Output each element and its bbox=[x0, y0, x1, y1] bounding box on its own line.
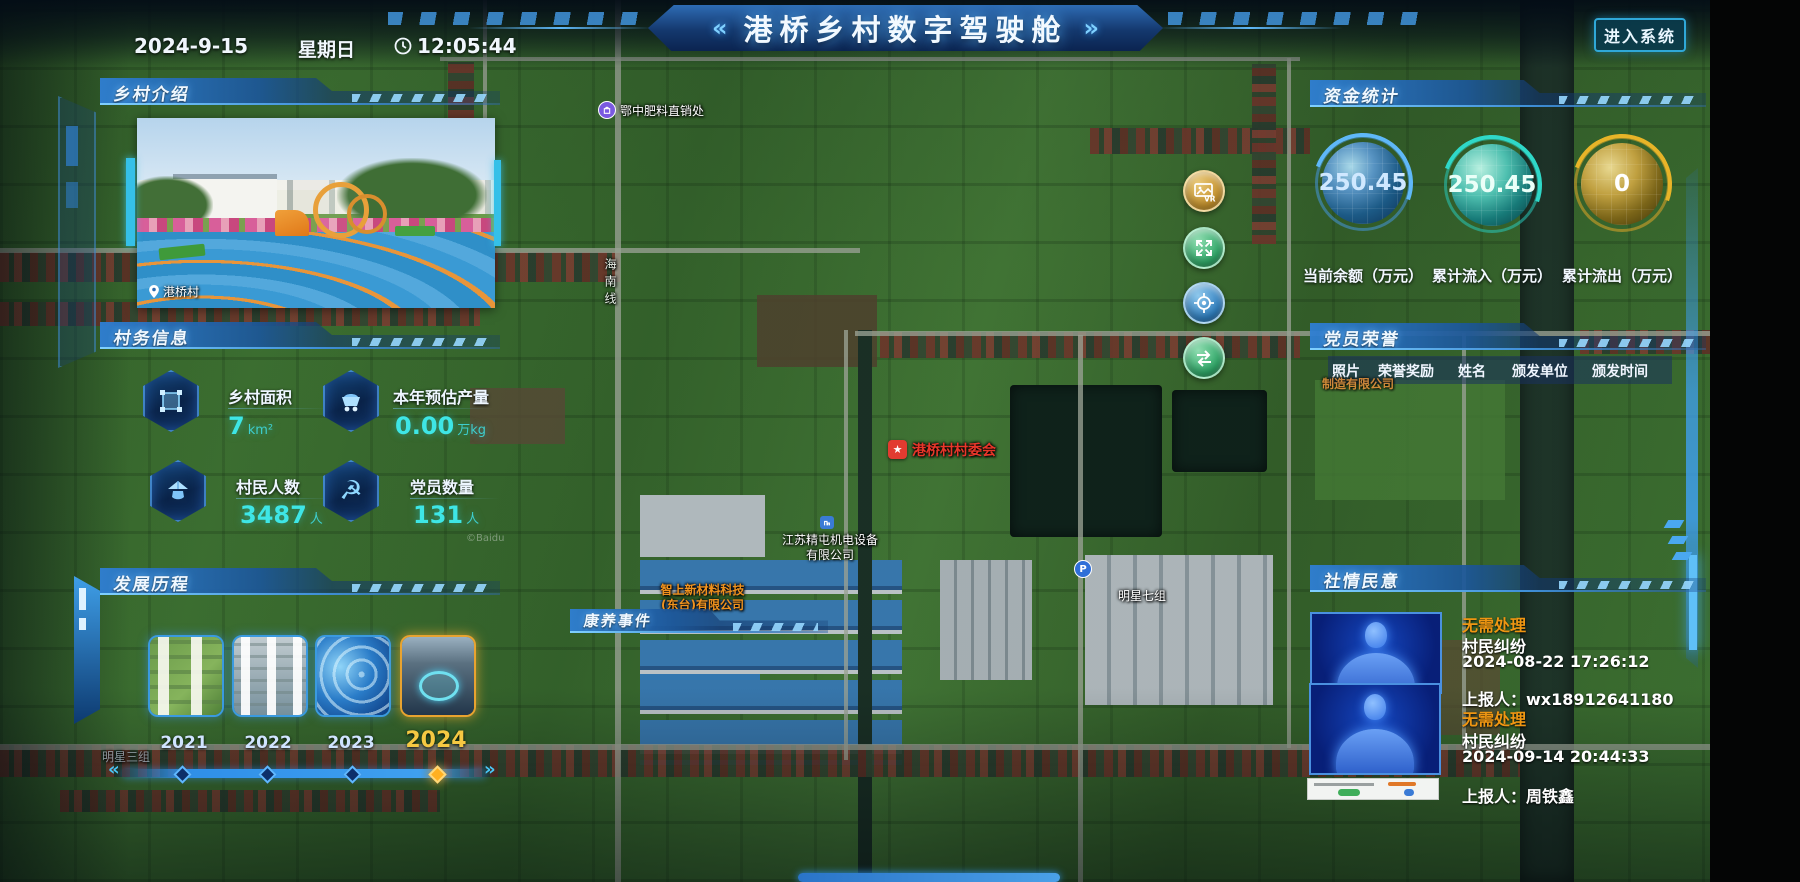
stat-label-area: 乡村面积 bbox=[228, 384, 292, 408]
left-chevron-icon: « bbox=[712, 14, 728, 42]
header-stripes bbox=[1559, 581, 1696, 589]
gauge-inflow: 250.45 bbox=[1444, 137, 1540, 233]
photo-bench bbox=[395, 226, 435, 236]
map-road bbox=[440, 57, 1300, 61]
village-intro-title: 乡村介绍 bbox=[112, 80, 192, 105]
stat-number: 7 bbox=[228, 412, 245, 440]
map-houses bbox=[60, 790, 440, 812]
photo-location-text: 港桥村 bbox=[163, 283, 199, 300]
photo-caption: 港桥村 bbox=[149, 283, 199, 300]
banner-wing-left bbox=[468, 27, 653, 29]
gauge-inflow-value: 250.45 bbox=[1444, 137, 1540, 233]
stat-label-yield: 本年预估产量 bbox=[393, 384, 489, 408]
village-info-title: 村务信息 bbox=[112, 324, 192, 349]
time-text: 12:05:44 bbox=[417, 34, 517, 58]
year-label-2024[interactable]: 2024 bbox=[398, 728, 474, 753]
thumb-green-pill bbox=[1338, 789, 1360, 796]
committee-star-pin-icon[interactable]: ★ bbox=[888, 440, 907, 459]
year-label-2022[interactable]: 2022 bbox=[230, 733, 306, 753]
vr-panorama-button[interactable]: VR bbox=[1183, 170, 1225, 212]
shop-pin-icon[interactable] bbox=[598, 101, 616, 119]
header-stripes bbox=[733, 623, 818, 631]
banner-wing-right bbox=[1158, 27, 1343, 29]
sentiment-title: 社情民意 bbox=[1322, 567, 1402, 592]
sentiment-list[interactable]: 无需处理 村民纠纷 2024-08-22 17:26:12 上报人：wx1891… bbox=[1305, 600, 1705, 882]
enter-system-button[interactable]: 进入系统 bbox=[1594, 18, 1686, 52]
header-decor-slashes-left bbox=[388, 12, 638, 25]
thumbnail-2021 bbox=[150, 637, 222, 715]
year-card-2023[interactable] bbox=[315, 635, 391, 717]
crosshair-icon bbox=[1192, 291, 1216, 315]
stat-divider bbox=[410, 498, 500, 499]
date-text: 2024-9-15 bbox=[134, 34, 248, 58]
header-stripes bbox=[1559, 96, 1696, 104]
vr-image-icon: VR bbox=[1192, 179, 1216, 203]
company-building-pin-icon[interactable] bbox=[820, 516, 834, 529]
map-white-building bbox=[640, 495, 765, 557]
map-warehouse bbox=[940, 560, 1032, 680]
stat-value-villagers: 3487人 bbox=[240, 501, 323, 529]
weekday-text: 星期日 bbox=[298, 35, 355, 62]
photo-accent-left bbox=[126, 158, 135, 246]
left-frame-bright bbox=[74, 576, 100, 724]
title-banner: « 港桥乡村数字驾驶舱 » bbox=[648, 5, 1163, 51]
company2-line1: 智上新材料科技 bbox=[650, 583, 755, 598]
stat-divider bbox=[228, 408, 328, 409]
map-road bbox=[1287, 58, 1291, 748]
map-label-road: 海南线 bbox=[602, 258, 617, 309]
left-frame-notch bbox=[66, 126, 78, 166]
map-label-company1: 江苏精屯机电设备 有限公司 bbox=[770, 533, 890, 563]
map-warehouse bbox=[1085, 555, 1273, 705]
map-road bbox=[855, 331, 1710, 336]
thumb-line bbox=[1314, 783, 1374, 786]
photo-accent-right bbox=[494, 160, 501, 246]
party-honors-title: 党员荣誉 bbox=[1322, 325, 1402, 350]
header-decor-slashes-right bbox=[1168, 12, 1418, 25]
header-stripes bbox=[352, 584, 490, 592]
village-photo[interactable]: 港桥村 bbox=[137, 118, 495, 308]
sentiment-item-1-time: 2024-08-22 17:26:12 bbox=[1462, 652, 1650, 671]
clock-icon bbox=[394, 37, 412, 59]
development-title: 发展历程 bbox=[112, 570, 192, 595]
sentiment-item-3-image-partial[interactable] bbox=[1307, 778, 1439, 800]
thumb-orange-line bbox=[1388, 782, 1416, 786]
parking-pin-icon[interactable]: P bbox=[1074, 560, 1092, 578]
thumbnail-2024-ring bbox=[419, 671, 459, 701]
sentiment-item-2-time: 2024-09-14 20:44:33 bbox=[1462, 747, 1650, 766]
bag-icon bbox=[603, 106, 611, 114]
thumb-blue-pill bbox=[1404, 789, 1414, 796]
gauge-outflow: 0 bbox=[1574, 136, 1670, 232]
stat-label-villagers: 村民人数 bbox=[236, 474, 300, 498]
layer-switch-button[interactable] bbox=[1183, 337, 1225, 379]
timeline-prev-icon[interactable]: « bbox=[108, 759, 120, 780]
gauge-outflow-label: 累计流出（万元） bbox=[1547, 265, 1697, 286]
gauge-balance-value: 250.45 bbox=[1315, 135, 1411, 231]
header-stripes bbox=[352, 94, 490, 102]
map-bottom-scrollbar[interactable] bbox=[798, 873, 1060, 882]
map-houses bbox=[1090, 128, 1310, 154]
stat-number: 0.00 bbox=[395, 412, 454, 440]
timeline-slider[interactable]: « » bbox=[112, 764, 496, 782]
photo-ring-sculpture-small bbox=[347, 194, 387, 234]
screen-black-edge bbox=[1710, 0, 1800, 882]
stat-divider bbox=[236, 498, 336, 499]
dashboard: 鄂中肥料直销处 海南线 ★ 港桥村村委会 江苏精屯机电设备 有限公司 智上新材料… bbox=[0, 0, 1800, 882]
col-name: 姓名 bbox=[1458, 361, 1486, 381]
stat-label-party: 党员数量 bbox=[410, 474, 474, 498]
left-frame-notch bbox=[66, 182, 78, 208]
stat-unit: 万kg bbox=[457, 423, 486, 438]
map-pond bbox=[1172, 390, 1267, 472]
year-card-2021[interactable] bbox=[148, 635, 224, 717]
location-pin-icon bbox=[149, 285, 159, 298]
health-events-title: 康养事件 bbox=[583, 610, 654, 631]
right-chevron-icon: » bbox=[1084, 14, 1100, 42]
stat-unit: km² bbox=[248, 423, 273, 438]
thumbnail-2023 bbox=[317, 637, 389, 715]
sentiment-item-2-image[interactable] bbox=[1309, 683, 1441, 775]
gauge-outflow-value: 0 bbox=[1574, 136, 1670, 232]
map-road bbox=[1078, 335, 1083, 882]
map-houses bbox=[1252, 64, 1276, 244]
map-canal bbox=[858, 330, 872, 882]
stat-unit: 人 bbox=[466, 512, 479, 527]
map-label-committee: 港桥村村委会 bbox=[912, 443, 996, 461]
map-copyright: ©Baidu bbox=[466, 533, 504, 546]
frame-notch bbox=[79, 618, 86, 630]
stat-value-party: 131人 bbox=[413, 501, 479, 529]
photo-slide bbox=[275, 210, 309, 236]
map-label-company3-partial: 制造有限公司 bbox=[1322, 377, 1394, 392]
year-card-2024[interactable] bbox=[400, 635, 476, 717]
sentiment-item-2-status: 无需处理 bbox=[1462, 706, 1526, 730]
stat-unit: 人 bbox=[310, 512, 323, 527]
col-issuer: 颁发单位 bbox=[1512, 361, 1568, 381]
fullscreen-expand-button[interactable] bbox=[1183, 227, 1225, 269]
gauge-balance-label: 当前余额（万元） bbox=[1288, 265, 1438, 286]
swap-arrows-icon bbox=[1192, 346, 1216, 370]
timeline-next-icon[interactable]: » bbox=[484, 759, 496, 780]
map-label-group7: 明星七组 bbox=[1118, 589, 1166, 604]
company1-line2: 有限公司 bbox=[770, 548, 890, 563]
col-date: 颁发时间 bbox=[1592, 361, 1648, 381]
stat-value-area: 7km² bbox=[228, 412, 273, 440]
thumbnail-2022 bbox=[234, 637, 306, 715]
map-label-fertilizer: 鄂中肥料直销处 bbox=[620, 104, 704, 119]
map-pond bbox=[1010, 385, 1162, 537]
sentiment-item-2-reporter: 上报人：周铁鑫 bbox=[1462, 783, 1574, 807]
map-feature-field bbox=[1315, 380, 1505, 500]
vr-label: VR bbox=[1204, 195, 1216, 204]
header-stripes bbox=[1559, 339, 1696, 347]
company1-line1: 江苏精屯机电设备 bbox=[770, 533, 890, 548]
year-label-2021[interactable]: 2021 bbox=[146, 733, 222, 753]
stat-number: 3487 bbox=[240, 501, 307, 529]
frame-notch bbox=[79, 588, 86, 610]
stat-value-yield: 0.00万kg bbox=[395, 412, 486, 440]
building-icon bbox=[823, 519, 831, 527]
funds-title: 资金统计 bbox=[1322, 82, 1402, 107]
gauge-balance: 250.45 bbox=[1315, 135, 1411, 231]
gauge-inflow-label: 累计流入（万元） bbox=[1417, 265, 1567, 286]
locate-target-button[interactable] bbox=[1183, 282, 1225, 324]
map-label-company2: 智上新材料科技 (东台)有限公司 bbox=[650, 583, 755, 613]
year-card-2022[interactable] bbox=[232, 635, 308, 717]
header-stripes bbox=[352, 338, 490, 346]
sentiment-item-1-image[interactable] bbox=[1310, 612, 1442, 694]
year-label-2023[interactable]: 2023 bbox=[313, 733, 389, 753]
stat-divider bbox=[393, 408, 493, 409]
expand-arrows-icon bbox=[1193, 237, 1215, 259]
page-title: 港桥乡村数字驾驶舱 bbox=[743, 7, 1067, 49]
stat-number: 131 bbox=[413, 501, 463, 529]
